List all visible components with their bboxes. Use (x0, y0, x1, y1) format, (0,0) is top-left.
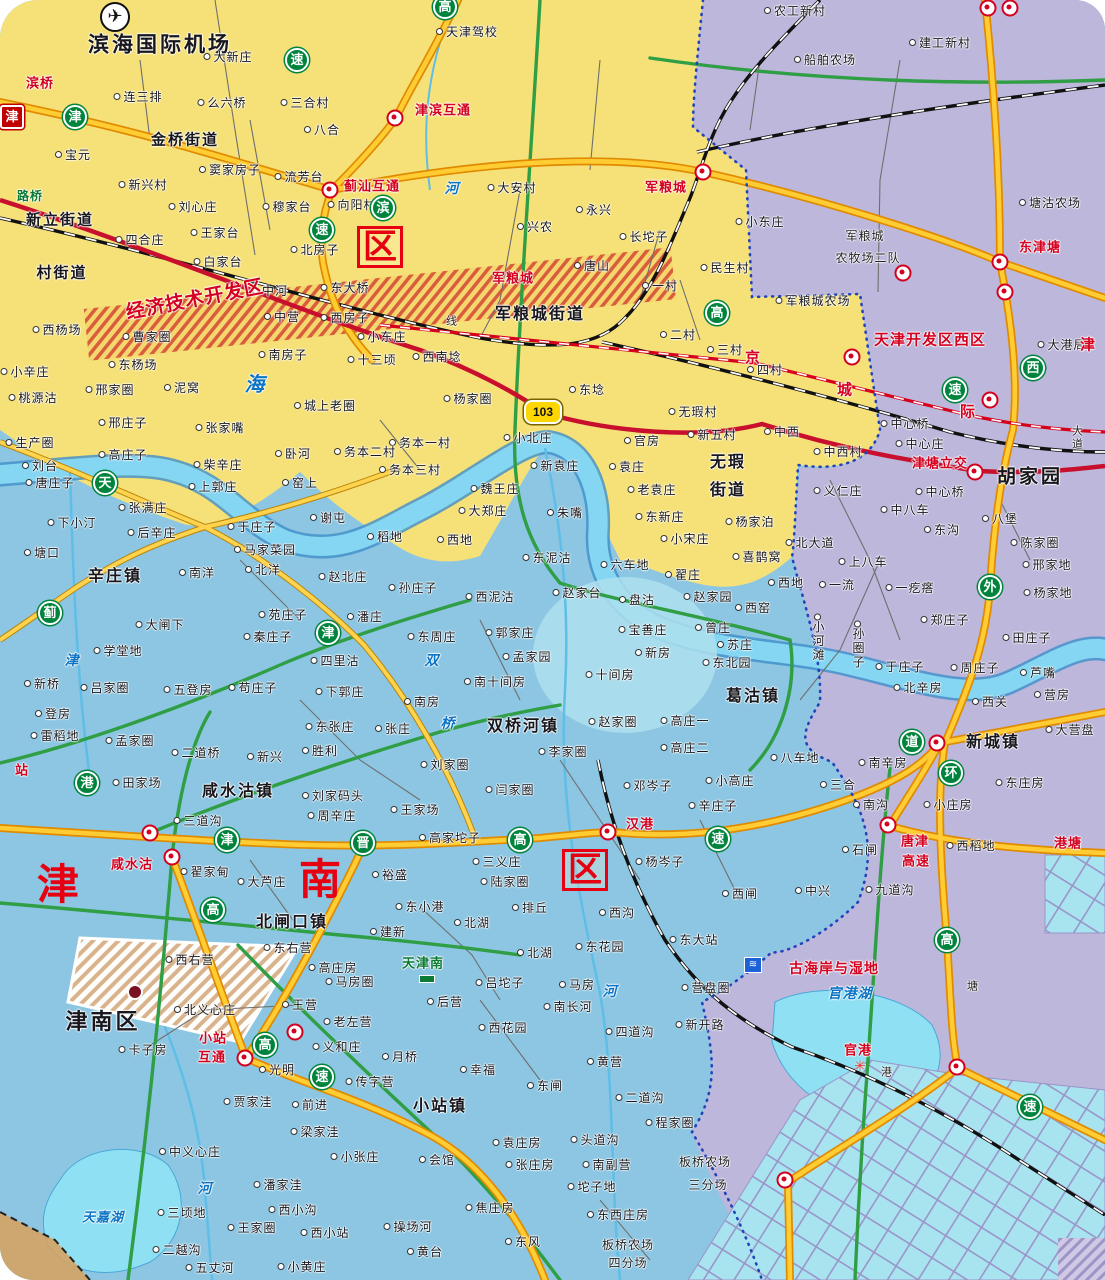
route-badge-icon: 晋 (351, 831, 375, 855)
map-label: 东大站 (669, 934, 718, 946)
map-label: 赵北庄 (318, 571, 367, 583)
wetland-icon: ≋ (744, 957, 762, 973)
map-label: 塘沽农场 (1019, 197, 1081, 209)
route-badge-icon: 津 (63, 105, 87, 129)
route-badge-icon: 道 (900, 730, 924, 754)
map-label: 辛庄镇 (88, 569, 142, 585)
interchange-icon (980, 0, 997, 17)
map-label: 建工新村 (909, 37, 971, 49)
map-label: 下小汀 (47, 517, 96, 529)
map-label: 村街道 (36, 266, 87, 281)
map-label: 咸水沽镇 (202, 784, 274, 800)
interchange-icon (1002, 0, 1019, 17)
map-label: 小北庄 (503, 432, 552, 444)
map-label: 西稻地 (946, 840, 995, 852)
map-label: 东津塘 (1019, 241, 1061, 254)
map-label: 小宋庄 (660, 533, 709, 545)
interchange-icon (600, 824, 617, 841)
map-label: 津 (1080, 338, 1096, 353)
map-label: 东小港 (395, 901, 444, 913)
interchange-icon (164, 849, 181, 866)
route-badge-icon: 速 (943, 378, 967, 402)
map-label: 永兴 (576, 204, 612, 216)
district-seat-icon (127, 984, 143, 1000)
map-label: 蓟汕互通 (344, 180, 400, 193)
map-label: 会馆 (419, 1154, 455, 1166)
map-label: 新五村 (687, 429, 736, 441)
map-label: 中西村 (813, 446, 862, 458)
map-label: 中义心庄 (159, 1146, 221, 1158)
map-label: 农工新村 (764, 5, 826, 17)
map-label: 白家台 (193, 256, 242, 268)
map-label: 中心庄 (895, 438, 944, 450)
map-label: 稻地 (367, 531, 403, 543)
map-label: 月桥 (382, 1051, 418, 1063)
map-label: 西窑 (735, 602, 771, 614)
map-label: 三合 (820, 779, 856, 791)
map-label: 东张庄 (305, 721, 354, 733)
map-label: 六车地 (600, 559, 649, 571)
map-label: 闫家圈 (485, 784, 534, 796)
map-label: 石闸 (842, 844, 878, 856)
map-label: 张庄房 (505, 1159, 554, 1171)
map-label: 苏庄 (717, 639, 753, 651)
map-label: 魏王庄 (470, 483, 519, 495)
map-label: 农牧场二队 (835, 252, 900, 264)
map-label: 孙圈子 (852, 621, 864, 670)
district-name-label: 区 (562, 849, 608, 891)
route-badge-icon: 速 (706, 827, 730, 851)
map-label: 王营 (282, 999, 318, 1011)
map-label: 海 (245, 375, 266, 395)
map-label: 葛沽镇 (726, 689, 780, 705)
map-label: 东花园 (575, 941, 624, 953)
map-label: 新兴 (247, 751, 283, 763)
map-label: 汉港 (626, 818, 654, 831)
map-label: 南沟 (853, 799, 889, 811)
map-label: 郭家庄 (485, 627, 534, 639)
interchange-icon (982, 392, 999, 409)
map-label: 大道 (1071, 425, 1082, 451)
route-badge-icon: 高 (201, 898, 225, 922)
route-badge-icon: 高 (508, 828, 532, 852)
map-label: 王家台 (190, 227, 239, 239)
map-label: 东周庄 (407, 631, 456, 643)
map-label: 高家坨子 (419, 832, 481, 844)
map-label: 大芦庄 (237, 876, 286, 888)
map-label: 西小站 (300, 1227, 349, 1239)
map-label: 四道沟 (605, 1026, 654, 1038)
map-label: 北闸口镇 (256, 915, 328, 931)
map-label: 贾家洼 (223, 1096, 272, 1108)
map-label: 新立街道 (26, 213, 94, 228)
interchange-icon (844, 349, 861, 366)
map-label: 窑上 (282, 477, 318, 489)
map-label: 高庄房 (308, 962, 357, 974)
map-label: 小东庄 (735, 216, 784, 228)
map-label: 八合 (304, 124, 340, 136)
interchange-icon (880, 817, 897, 834)
map-label: 义仁庄 (813, 485, 862, 497)
map-label: 流芳台 (274, 171, 323, 183)
map-label: 务本二村 (334, 446, 396, 458)
map-label: 田庄子 (1002, 632, 1051, 644)
map-label: 西房子 (320, 312, 369, 324)
map-label: 板桥农场 (679, 1156, 731, 1168)
map-label: 胡家园 (997, 468, 1063, 487)
map-label: 潘家洼 (253, 1179, 302, 1191)
map-label: 新房 (635, 647, 671, 659)
map-label: 东风 (505, 1236, 541, 1248)
map-label: 西花园 (478, 1022, 527, 1034)
map-label: 上郭庄 (188, 481, 237, 493)
map-label: 东西庄房 (587, 1209, 649, 1221)
map-label: 双 (425, 655, 440, 669)
map-label: 东杨场 (108, 359, 157, 371)
map-label: 高庄子 (98, 449, 147, 461)
map-label: 小张庄 (330, 1151, 379, 1163)
interchange-icon (287, 1024, 304, 1041)
map-label: 滨桥 (26, 77, 54, 90)
map-label: 下郭庄 (315, 686, 364, 698)
map-label: 大闸下 (135, 619, 184, 631)
map-label: 三道沟 (173, 815, 222, 827)
map-label: 军粮城 (645, 181, 687, 194)
map-label: 高速 (902, 855, 930, 868)
map-label: 小站镇 (413, 1099, 467, 1115)
map-label: 胜利 (302, 745, 338, 757)
map-label: 小高庄 (705, 775, 754, 787)
map-label: 连三排 (113, 91, 162, 103)
map-label: 南副营 (582, 1159, 631, 1171)
map-label: 军粮城农场 (775, 295, 850, 307)
map-label: 前进 (292, 1099, 328, 1111)
map-label: 河 (445, 183, 460, 197)
map-label: 刘台 (22, 460, 58, 472)
map-label: 东泥沽 (522, 552, 571, 564)
map-label: 小站 (199, 1032, 227, 1045)
map-label: 王家圈 (227, 1222, 276, 1234)
map-label: 生产圈 (5, 437, 54, 449)
district-name-label: 区 (357, 226, 403, 268)
interchange-icon (997, 284, 1014, 301)
map-label: 西泥沽 (465, 591, 514, 603)
map-label: 际 (960, 405, 976, 420)
map-label: 梁家洼 (290, 1126, 339, 1138)
map-label: 卡子房 (118, 1044, 167, 1056)
map-label: 田家场 (112, 777, 161, 789)
map-labels-layer: 滨海国际机场大新庄连三排么六桥三合村八合金桥街道宝元新兴村窦家房子流芳台刘心庄穆… (0, 0, 1105, 1280)
map-label: 南长河 (543, 1001, 592, 1013)
map-label: 马家菜园 (234, 544, 296, 556)
map-label: 陈家圈 (1010, 537, 1059, 549)
route-badge-icon: 速 (1018, 1095, 1042, 1119)
map-label: 义和庄 (312, 1041, 361, 1053)
map-label: 朱嘴 (547, 507, 583, 519)
map-label: 东闸 (527, 1080, 563, 1092)
map-label: 中兴 (795, 885, 831, 897)
map-label: 天津开发区西区 (874, 333, 986, 348)
map-label: 城 (837, 383, 853, 398)
map-label: 杨岑子 (635, 856, 684, 868)
map-label: 芦嘴 (1020, 667, 1056, 679)
map-label: 西小沟 (268, 1204, 317, 1216)
map-label: 西地 (437, 534, 473, 546)
district-name-label: 南 (299, 859, 341, 901)
map-label: 南房子 (258, 349, 307, 361)
map-label: 新城镇 (966, 735, 1020, 751)
map-label: 北辛房 (893, 682, 942, 694)
map-label: 东右营 (263, 942, 312, 954)
map-label: 板桥农场 (602, 1239, 654, 1251)
map-label: 传字营 (345, 1076, 394, 1088)
map-label: 老袁庄 (627, 484, 676, 496)
map-label: 南十间房 (464, 676, 526, 688)
map-label: 东大桥 (320, 282, 369, 294)
map-label: 于庄子 (227, 521, 276, 533)
map-label: 宝元 (55, 149, 91, 161)
map-label: 向阳村 (327, 199, 376, 211)
map-label: 建新 (370, 926, 406, 938)
map-label: 中心桥 (915, 486, 964, 498)
railway-station-icon (419, 975, 435, 983)
map-label: 新兴村 (118, 179, 167, 191)
map-label: 津塘立交 (912, 457, 968, 470)
map-label: 孟家圈 (105, 735, 154, 747)
map-label: 郑庄子 (920, 614, 969, 626)
map-label: 穆家台 (262, 201, 311, 213)
map-label: 四分场 (608, 1257, 647, 1269)
map-label: 船舶农场 (794, 54, 856, 66)
map-label: 北大道 (785, 537, 834, 549)
route-badge-icon: 高 (253, 1033, 277, 1057)
map-label: 天津驾校 (436, 26, 498, 38)
map-label: 邢家圈 (85, 384, 134, 396)
map-label: 站 (15, 764, 29, 777)
route-badge-icon: 高 (935, 928, 959, 952)
map-label: 马房圈 (325, 976, 374, 988)
map-label: 黄营 (587, 1056, 623, 1068)
map-label: 程家圈 (645, 1117, 694, 1129)
route-badge-icon: 滨 (371, 196, 395, 220)
map-label: 小东庄 (357, 331, 406, 343)
map-label: 刘家圈 (420, 759, 469, 771)
map-label: 街道 (710, 483, 746, 499)
route-badge-icon: 外 (978, 575, 1002, 599)
interchange-icon (777, 1172, 794, 1189)
route-badge-icon: 103 (524, 400, 562, 424)
map-label: 二越沟 (152, 1244, 201, 1256)
map-label: 北义心庄 (174, 1004, 236, 1016)
map-label: 上八车 (838, 556, 887, 568)
map-label: 三合村 (280, 97, 329, 109)
map-label: 吕坨子 (475, 977, 524, 989)
map-label: 北洋 (245, 564, 281, 576)
map-label: 塘 (967, 982, 979, 993)
map-label: 杨家泊 (725, 516, 774, 528)
map-label: 辛庄子 (688, 800, 737, 812)
map-label: 赵家园 (683, 591, 732, 603)
map-label: 一流 (819, 579, 855, 591)
map-label: 营房 (1034, 689, 1070, 701)
map-label: 津 (65, 655, 80, 669)
map-label: 无瑕 (710, 455, 746, 471)
map-label: 孙庄子 (388, 582, 437, 594)
map-label: 光明 (259, 1064, 295, 1076)
map-label: 大营盘 (1045, 724, 1094, 736)
map-label: 咸水沽 (111, 858, 153, 871)
map-label: 一疙瘩 (885, 582, 934, 594)
map-label: 裕盛 (372, 869, 408, 881)
map-label: 宝善庄 (618, 624, 667, 636)
route-badge-icon: 蓟 (38, 601, 62, 625)
map-label: 古海岸与湿地 (789, 961, 879, 975)
map-label: 赵家圈 (588, 716, 637, 728)
map-label: 于庄子 (875, 661, 924, 673)
map-label: 排丘 (512, 902, 548, 914)
map-label: 小河滩 (812, 614, 824, 663)
map-label: 新桥 (24, 678, 60, 690)
map-label: 张满庄 (118, 502, 167, 514)
route-badge-icon: 港 (75, 771, 99, 795)
map-label: 头道沟 (570, 1134, 619, 1146)
map-label: 马房 (559, 979, 595, 991)
map-label: 二道沟 (615, 1092, 664, 1104)
route-badge-icon: 环 (939, 761, 963, 785)
map-label: 九道沟 (865, 884, 914, 896)
map-label: 刘家码头 (302, 790, 364, 802)
map-label: 一村 (642, 280, 678, 292)
map-label: 五丈河 (185, 1262, 234, 1274)
map-label: 周庄子 (950, 662, 999, 674)
map-label: 潘庄 (347, 611, 383, 623)
map-label: 金桥街道 (151, 133, 219, 148)
map-label: 四里沽 (310, 655, 359, 667)
map-label: 袁庄 (609, 461, 645, 473)
map-label: 中心桥 (880, 418, 929, 430)
map-label: 四合庄 (115, 234, 164, 246)
map-label: 中营 (264, 311, 300, 323)
map-label: 北房子 (290, 244, 339, 256)
interchange-icon (949, 1059, 966, 1076)
map-label: 桥 (441, 718, 456, 732)
map-label: 黄台 (407, 1246, 443, 1258)
interchange-icon (142, 825, 159, 842)
map-label: 曾庄 (695, 622, 731, 634)
map-label: 坨子地 (567, 1181, 616, 1193)
map-label: 津南区 (65, 1011, 140, 1033)
map-label: 西地 (768, 577, 804, 589)
map-label: 翟家甸 (180, 866, 229, 878)
interchange-icon (322, 182, 339, 199)
map-label: 大安村 (487, 182, 536, 194)
map-label: 大郑庄 (458, 505, 507, 517)
route-badge-icon: 速 (310, 1065, 334, 1089)
map-label: 天津南 (402, 957, 444, 970)
map-label: 张家嘴 (195, 422, 244, 434)
map-label: 操场河 (383, 1221, 432, 1233)
atlas-page: 滨海国际机场大新庄连三排么六桥三合村八合金桥街道宝元新兴村窦家房子流芳台刘心庄穆… (0, 0, 1105, 1280)
map-label: 唐庄子 (25, 477, 74, 489)
map-label: 幸福 (460, 1064, 496, 1076)
map-label: 新袁庄 (530, 460, 579, 472)
map-label: 东新庄 (635, 511, 684, 523)
map-label: 十三顷 (347, 354, 396, 366)
map-label: 唐津 (901, 835, 929, 848)
map-label: 后营 (427, 996, 463, 1008)
map-label: 杨家地 (1023, 587, 1072, 599)
map-label: 东沟 (924, 524, 960, 536)
map-label: 南房 (404, 696, 440, 708)
map-label: 高庄一 (660, 715, 709, 727)
scenic-star-icon: ✳ (854, 1058, 866, 1075)
map-label: 李家圈 (538, 746, 587, 758)
map-label: 桃源沽 (8, 392, 57, 404)
map-label: 卧河 (275, 448, 311, 460)
map-label: 天嘉湖 (82, 1211, 124, 1224)
route-badge-icon: 津 (215, 828, 239, 852)
route-badge-icon: 速 (310, 218, 334, 242)
map-label: 三分场 (688, 1179, 727, 1191)
interchange-icon (929, 735, 946, 752)
map-label: 东庄房 (995, 777, 1044, 789)
map-label: 三义庄 (472, 856, 521, 868)
map-label: 中西 (764, 426, 800, 438)
map-label: 北湖 (517, 947, 553, 959)
map-label: 务本三村 (379, 464, 441, 476)
map-label: 官港 (844, 1044, 872, 1057)
map-label: 西南埝 (412, 351, 461, 363)
route-badge-icon: 高 (705, 301, 729, 325)
airport-icon: ✈ (100, 2, 130, 32)
map-label: 南辛房 (858, 757, 907, 769)
map-label: 新开路 (675, 1019, 724, 1031)
map-label: 学堂地 (93, 645, 142, 657)
map-label: 西右营 (165, 954, 214, 966)
map-label: 塘口 (24, 547, 60, 559)
map-label: 中八车 (880, 504, 929, 516)
map-label: 十间房 (585, 669, 634, 681)
map-label: 谢屯 (310, 512, 346, 524)
map-label: 河 (603, 986, 618, 1000)
map-label: 老左营 (323, 1016, 372, 1028)
map-label: 小黄庄 (277, 1261, 326, 1273)
map-canvas: 滨海国际机场大新庄连三排么六桥三合村八合金桥街道宝元新兴村窦家房子流芳台刘心庄穆… (0, 0, 1105, 1280)
map-label: 杨家圈 (443, 393, 492, 405)
map-label: 路桥 (17, 190, 43, 202)
map-label: 津滨互通 (415, 104, 471, 117)
map-label: 么六桥 (197, 97, 246, 109)
map-label: 高庄二 (660, 742, 709, 754)
map-label: 小辛庄 (0, 366, 49, 378)
map-label: 西沟 (599, 907, 635, 919)
map-label: 王家场 (390, 804, 439, 816)
map-label: 线 (446, 317, 458, 328)
map-label: 官港湖 (828, 988, 873, 1002)
map-label: 陆家圈 (480, 876, 529, 888)
map-label: 北湖 (454, 917, 490, 929)
map-label: 兴农 (517, 221, 553, 233)
map-label: 无瑕村 (668, 406, 717, 418)
map-label: 盘沽 (619, 594, 655, 606)
route-badge-icon: 津 (316, 621, 340, 645)
map-label: 周辛庄 (307, 810, 356, 822)
interchange-icon (992, 254, 1009, 271)
route-badge-icon: 天 (93, 471, 117, 495)
map-label: 营盘圈 (681, 982, 730, 994)
map-label: 刘心庄 (168, 201, 217, 213)
interchange-icon (895, 265, 912, 282)
